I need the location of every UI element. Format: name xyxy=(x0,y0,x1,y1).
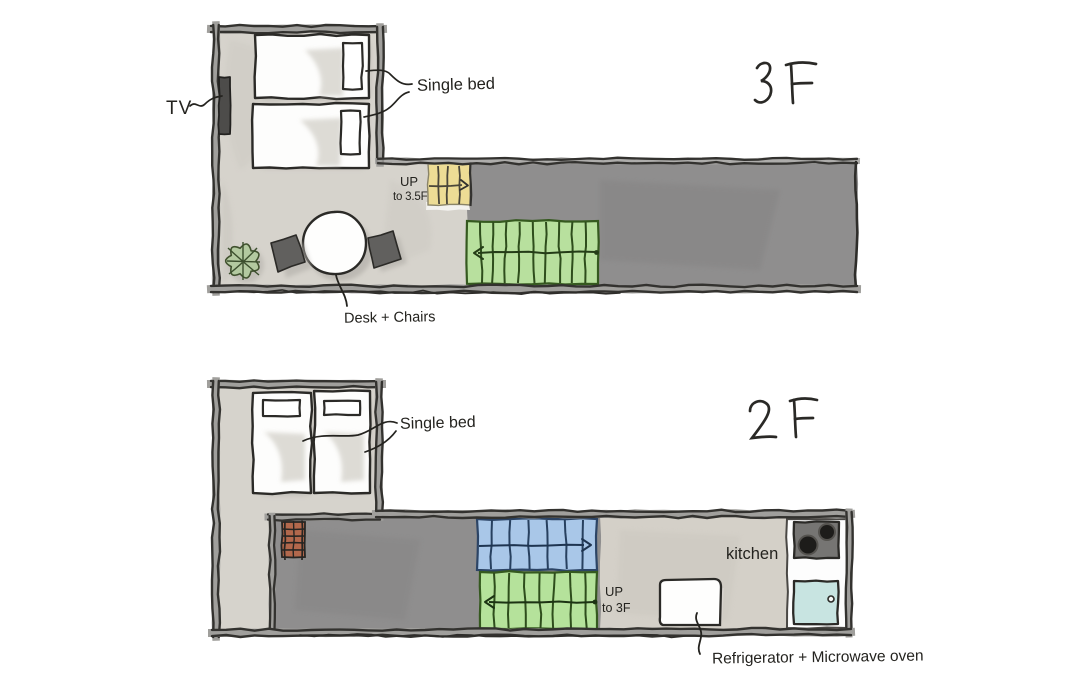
svg-text:Single bed: Single bed xyxy=(417,75,495,95)
svg-text:TV: TV xyxy=(166,98,192,119)
svg-text:to 3.5F: to 3.5F xyxy=(393,191,428,203)
svg-text:Refrigerator + Microwave oven: Refrigerator + Microwave oven xyxy=(712,648,924,668)
svg-text:Single bed: Single bed xyxy=(400,414,476,433)
svg-text:to 3F: to 3F xyxy=(602,601,631,615)
svg-text:kitchen: kitchen xyxy=(726,545,778,563)
svg-text:Desk + Chairs: Desk + Chairs xyxy=(344,309,436,327)
svg-text:UP: UP xyxy=(400,174,418,189)
svg-text:UP: UP xyxy=(605,584,623,599)
